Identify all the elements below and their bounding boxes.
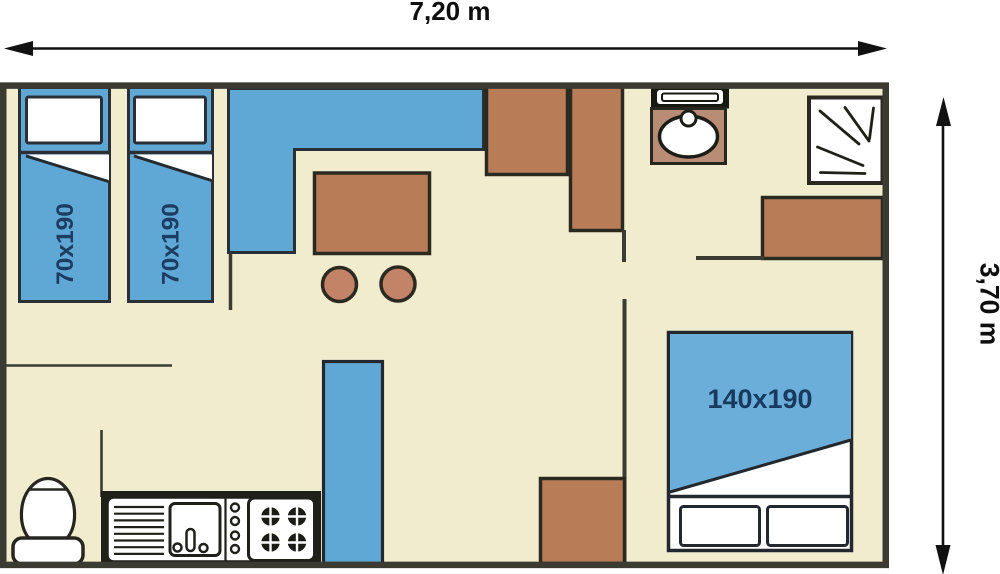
svg-text:7,20 m: 7,20 m <box>410 0 491 26</box>
svg-text:3,70 m: 3,70 m <box>975 263 1000 346</box>
svg-text:70x190: 70x190 <box>158 203 185 285</box>
svg-text:70x190: 70x190 <box>52 203 79 285</box>
svg-text:140x190: 140x190 <box>707 384 812 414</box>
